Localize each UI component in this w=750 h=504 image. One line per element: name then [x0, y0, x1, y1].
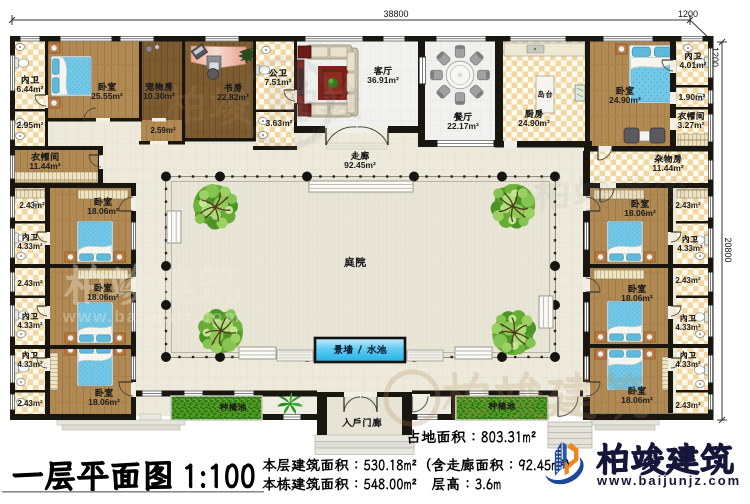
- svg-text:38800: 38800: [383, 9, 408, 19]
- svg-text:2.43m²: 2.43m²: [17, 279, 43, 288]
- svg-text:4.33m²: 4.33m²: [17, 321, 43, 330]
- svg-text:2.59m²: 2.59m²: [150, 126, 176, 135]
- svg-text:92.45m²: 92.45m²: [344, 160, 376, 170]
- svg-text:18.06m²: 18.06m²: [624, 208, 656, 218]
- svg-text:11.44m²: 11.44m²: [29, 161, 60, 171]
- svg-text:2.43m²: 2.43m²: [17, 399, 43, 408]
- svg-text:22.82m²: 22.82m²: [217, 92, 249, 102]
- svg-text:4.33m²: 4.33m²: [675, 323, 701, 332]
- svg-text:3.63m²: 3.63m²: [266, 118, 293, 128]
- svg-text:2.43m²: 2.43m²: [675, 276, 701, 285]
- svg-text:36.91m²: 36.91m²: [367, 75, 399, 85]
- svg-text:1200: 1200: [678, 9, 698, 19]
- svg-text:3.27m²: 3.27m²: [678, 120, 705, 130]
- svg-text:1.90m²: 1.90m²: [679, 92, 706, 102]
- svg-text:10.30m²: 10.30m²: [143, 91, 175, 101]
- svg-text:20800: 20800: [723, 237, 733, 262]
- svg-text:24.90m²: 24.90m²: [609, 95, 641, 105]
- svg-text:18.06m²: 18.06m²: [621, 293, 653, 303]
- svg-text:6.44m²: 6.44m²: [17, 84, 44, 94]
- svg-text:4.01m²: 4.01m²: [680, 60, 707, 70]
- svg-text:www.baijunjz.com: www.baijunjz.com: [62, 307, 242, 326]
- svg-text:2.43m²: 2.43m²: [675, 201, 701, 210]
- svg-text:11.44m²: 11.44m²: [652, 163, 683, 173]
- svg-text:7.51m²: 7.51m²: [265, 77, 292, 87]
- svg-text:2.95m²: 2.95m²: [17, 120, 44, 130]
- svg-text:4.33m²: 4.33m²: [677, 244, 703, 253]
- svg-text:22.17m²: 22.17m²: [447, 121, 479, 131]
- svg-text:www.baijunjz.com: www.baijunjz.com: [596, 473, 741, 488]
- svg-text:4.33m²: 4.33m²: [675, 360, 701, 369]
- svg-text:18.06m²: 18.06m²: [621, 395, 653, 405]
- svg-text:18.06m²: 18.06m²: [87, 292, 119, 302]
- svg-text:18.06m²: 18.06m²: [87, 206, 119, 216]
- svg-text:2.43m²: 2.43m²: [675, 401, 701, 410]
- svg-text:24.90m²: 24.90m²: [518, 118, 550, 128]
- svg-text:18.06m²: 18.06m²: [88, 397, 120, 407]
- svg-text:4.33m²: 4.33m²: [17, 360, 43, 369]
- svg-text:25.55m²: 25.55m²: [91, 91, 123, 101]
- svg-text:2.43m²: 2.43m²: [19, 201, 45, 210]
- svg-text:4.33m²: 4.33m²: [17, 242, 43, 251]
